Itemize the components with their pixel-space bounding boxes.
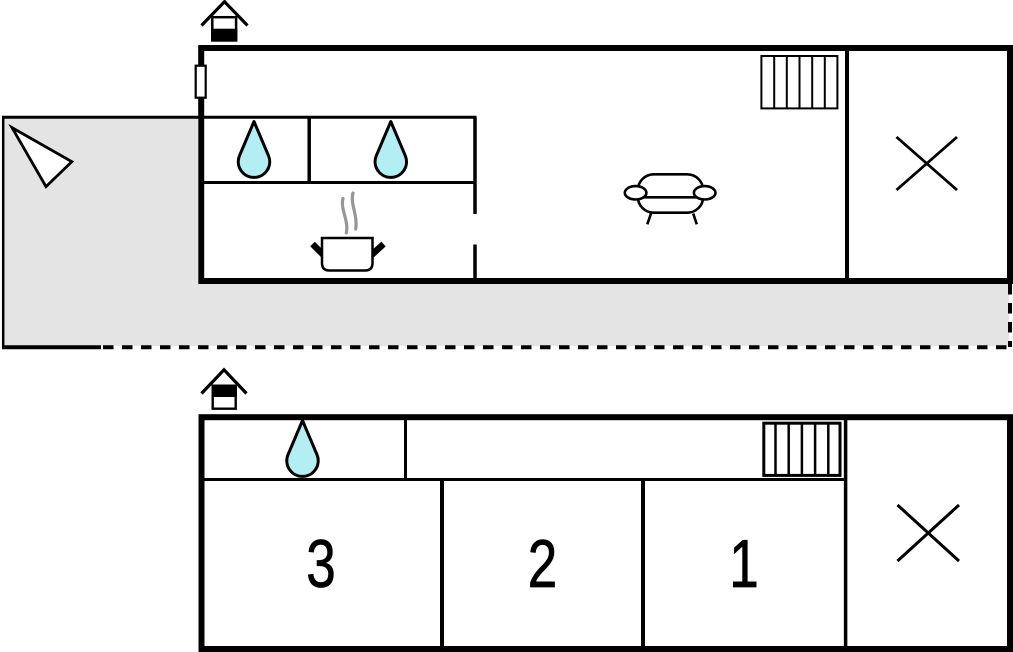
- svg-text:2: 2: [528, 526, 558, 602]
- svg-text:1: 1: [729, 526, 759, 602]
- svg-text:3: 3: [306, 526, 336, 602]
